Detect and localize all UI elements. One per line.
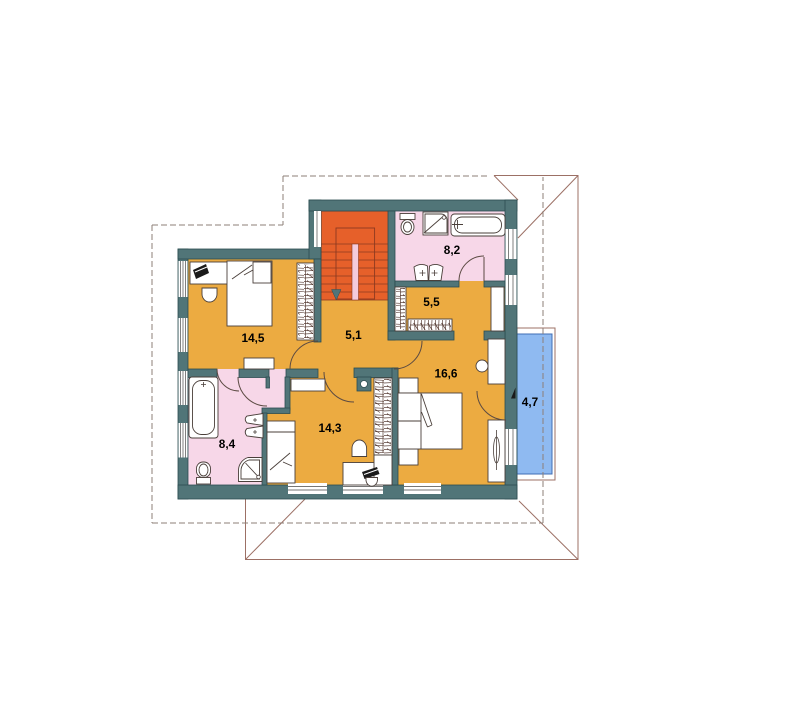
- svg-text:14,3: 14,3: [319, 421, 342, 435]
- svg-text:4,7: 4,7: [522, 395, 539, 409]
- svg-text:8,4: 8,4: [219, 437, 236, 451]
- svg-text:5,5: 5,5: [423, 295, 440, 309]
- svg-text:5,1: 5,1: [345, 328, 362, 342]
- svg-text:14,5: 14,5: [242, 331, 265, 345]
- svg-text:16,6: 16,6: [435, 367, 458, 381]
- svg-text:8,2: 8,2: [444, 243, 461, 257]
